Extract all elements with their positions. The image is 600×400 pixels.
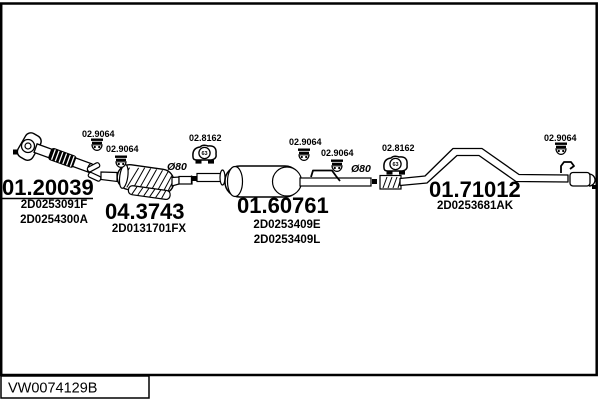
ref-code: 2D0253409L <box>254 234 321 246</box>
part-code-front-pipe: 01.20039 <box>2 175 94 200</box>
footer-code-box: VW0074129B <box>1 376 149 398</box>
part-code-catalyst: 04.3743 <box>105 199 185 224</box>
clamp-code-label: 02.9064 <box>106 144 139 154</box>
clamp-icon <box>555 143 567 155</box>
exhaust-diagram-page: 63 <box>0 0 600 400</box>
ref-code: 2D0253091F <box>21 199 88 211</box>
ref-code: 2D0131701FX <box>112 223 186 235</box>
clamp-code-label: 02.9064 <box>289 137 322 147</box>
ref-code: 2D0253409E <box>253 219 320 231</box>
clamp-icon <box>91 139 103 151</box>
clamp-code-label: 02.9064 <box>82 129 115 139</box>
bolt-square <box>592 185 596 189</box>
bolt-square <box>372 179 377 184</box>
clamp-icon <box>115 156 127 168</box>
part-code-centre-silencer: 01.60761 <box>237 193 329 218</box>
diameter-label: Ø80 <box>167 161 187 173</box>
ref-code: 2D0254300A <box>20 214 88 226</box>
ref-code: 2D0253681AK <box>437 200 514 212</box>
part-code-tail-pipe: 01.71012 <box>429 177 521 202</box>
footer-code-label: VW0074129B <box>8 381 97 397</box>
exhaust-diagram-canvas: 63 <box>0 0 600 400</box>
clamp-code-label: 02.9064 <box>544 133 577 143</box>
mount-code-label: 02.8162 <box>382 143 415 153</box>
clamp-code-label: 02.9064 <box>321 148 354 158</box>
mount-code-label: 02.8162 <box>189 133 222 143</box>
clamp-icon <box>331 160 343 172</box>
clamp-icon <box>298 149 310 161</box>
diameter-label: Ø80 <box>351 163 371 175</box>
